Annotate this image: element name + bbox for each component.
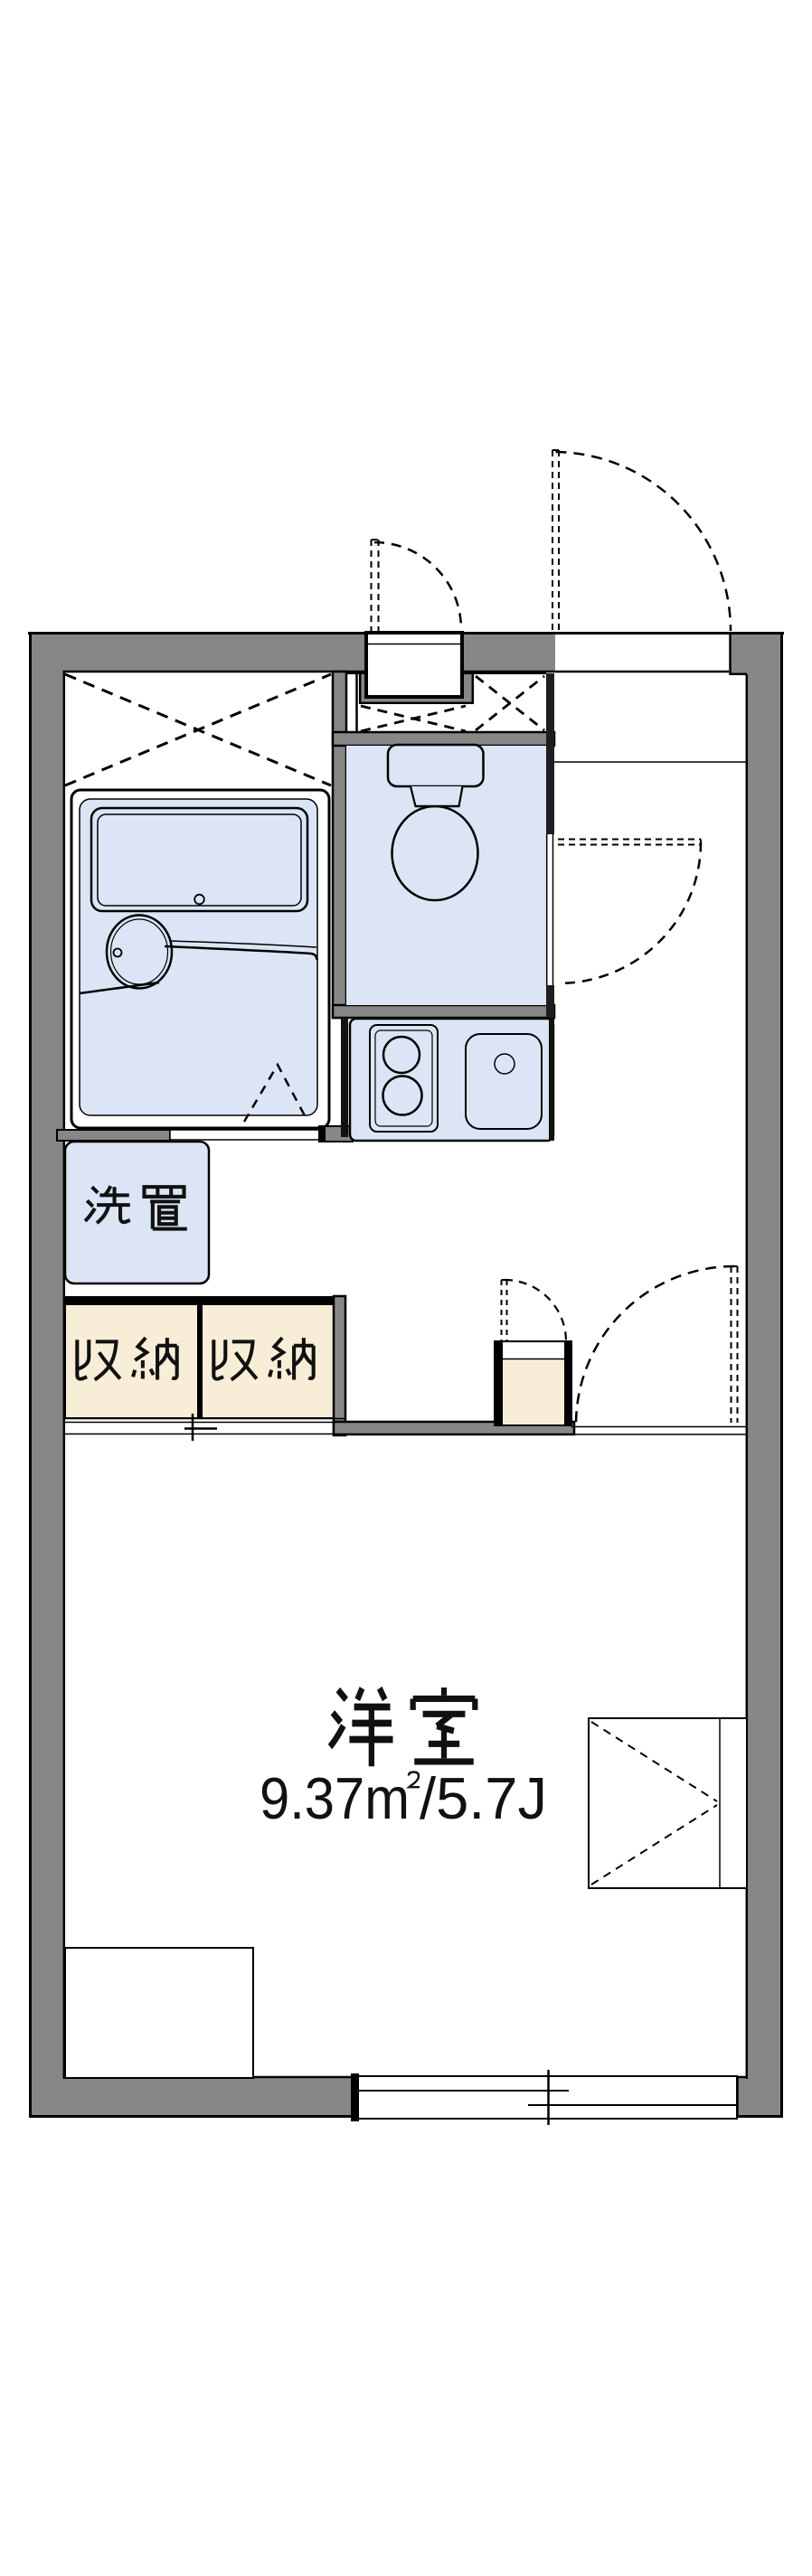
svg-text:9.37m: 9.37m <box>260 1765 410 1831</box>
svg-text:/5.7J: /5.7J <box>420 1765 547 1831</box>
